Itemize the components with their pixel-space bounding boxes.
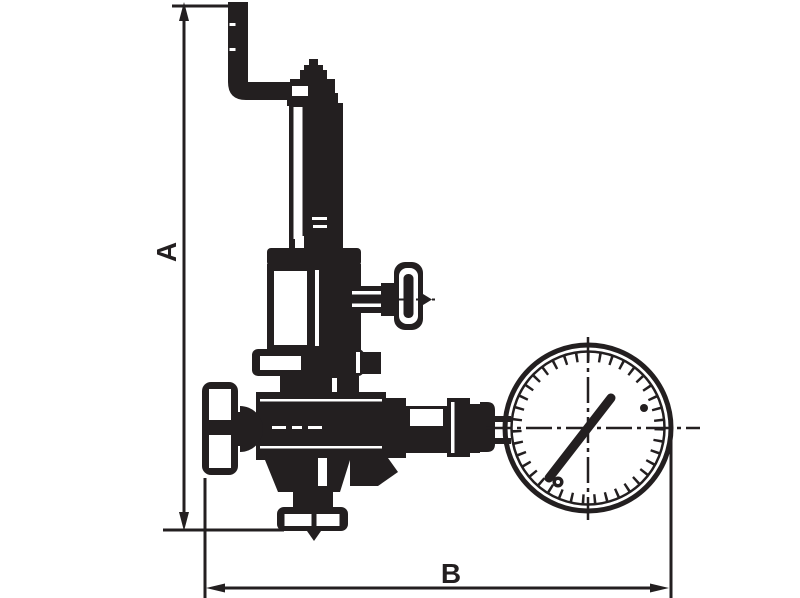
bottom-drain-tip (307, 531, 321, 541)
body-taper (265, 460, 350, 492)
bonnet-flange (267, 248, 361, 266)
outlet-nut-1 (386, 398, 406, 458)
body-right-bracket (350, 458, 398, 486)
dimension-b-label: B (441, 558, 461, 589)
bottom-flange-part (277, 507, 348, 541)
valve-assembly (202, 2, 700, 541)
dimension-a-arrow-down (179, 512, 189, 531)
inlet-handwheel-part (202, 382, 263, 475)
outlet-ring (470, 404, 480, 453)
gauge-needle (549, 398, 611, 478)
valve-body-part (256, 392, 398, 509)
dimension-b-arrow-left (206, 584, 225, 593)
bonnet-tube-part (289, 103, 343, 250)
outlet-nut-2 (447, 398, 470, 457)
dimension-a-label: A (151, 242, 182, 262)
upper-body-flange-part (252, 349, 381, 394)
pressure-gauge-part (486, 337, 700, 520)
body-neck (293, 490, 333, 509)
technical-drawing: A B (0, 0, 800, 598)
stem-cap-part (287, 59, 338, 106)
outlet-pipe-top (494, 416, 511, 422)
gauge-stop-pin (640, 404, 648, 412)
dimension-b-arrow-right (650, 584, 669, 593)
